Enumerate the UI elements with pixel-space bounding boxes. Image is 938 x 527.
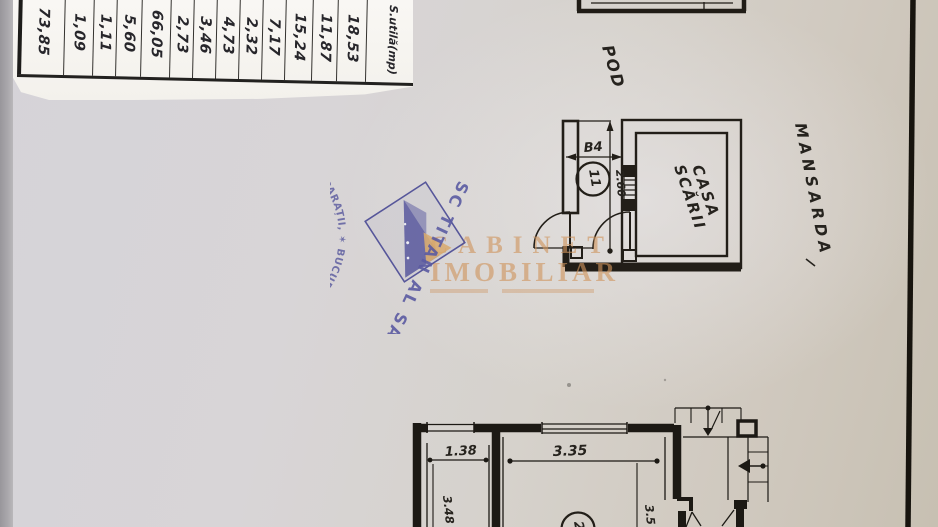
- page-border-line: [908, 0, 913, 527]
- dim-1-38: 1.38: [444, 443, 477, 460]
- room-11-number: 11: [585, 168, 603, 188]
- area-table-cell: 7,17: [261, 0, 286, 80]
- area-table-cell: 1,09: [63, 0, 94, 76]
- top-room-walls: [577, 0, 746, 11]
- dim-3-5: 3.5: [642, 504, 658, 526]
- casa-scarii-label: CASA SCĂRII: [670, 157, 725, 233]
- company-stamp: ✶ BUCUREȘTI ✶ ADMINISTRAȚIE LOCATIVĂ, VÂ…: [330, 138, 526, 334]
- area-table-cell: 2,73: [169, 0, 194, 78]
- lower-level-walls: [413, 406, 768, 527]
- area-table-cell: 15,24: [284, 0, 313, 81]
- area-table-cell: 1,11: [92, 0, 117, 76]
- area-table-cell: 3,46: [192, 0, 217, 78]
- mansarda-overline: [806, 259, 815, 266]
- room-2-number: 2: [570, 520, 586, 527]
- paper-speck: [567, 383, 571, 387]
- paper-speck: [664, 379, 666, 381]
- area-table-cell: 2,32: [238, 0, 263, 80]
- mansarda-label: MANSARDA: [791, 121, 835, 258]
- dim-3-48: 3.48: [440, 495, 457, 525]
- area-table-cell: 18,53: [336, 0, 367, 82]
- dim-3-35: 3.35: [553, 443, 588, 460]
- scanned-floor-plan-page: POD MANSARDA: [0, 0, 938, 527]
- scan-edge-band: [0, 0, 13, 527]
- area-table-cell: 4,73: [215, 0, 240, 79]
- area-table-cell: 11,87: [311, 0, 338, 81]
- pod-label: POD: [598, 43, 629, 91]
- area-table-cell: 73,85: [17, 0, 65, 75]
- area-table-cell: 66,05: [140, 0, 171, 77]
- area-table-paper-strip: 73,85 1,09 1,11 5,60 66,05 2,73 3,46 4,7…: [13, 0, 413, 100]
- area-table-cell: 5,60: [115, 0, 142, 77]
- area-table-header-cell: S.utilă(mp): [365, 0, 420, 83]
- dim-2-60: 2.60: [613, 169, 628, 197]
- dim-b4: B4: [583, 140, 603, 156]
- area-table: 73,85 1,09 1,11 5,60 66,05 2,73 3,46 4,7…: [17, 0, 420, 86]
- stamp-ring-text: ✶ BUCUREȘTI ✶ ADMINISTRAȚIE LOCATIVĂ, VÂ…: [330, 138, 347, 331]
